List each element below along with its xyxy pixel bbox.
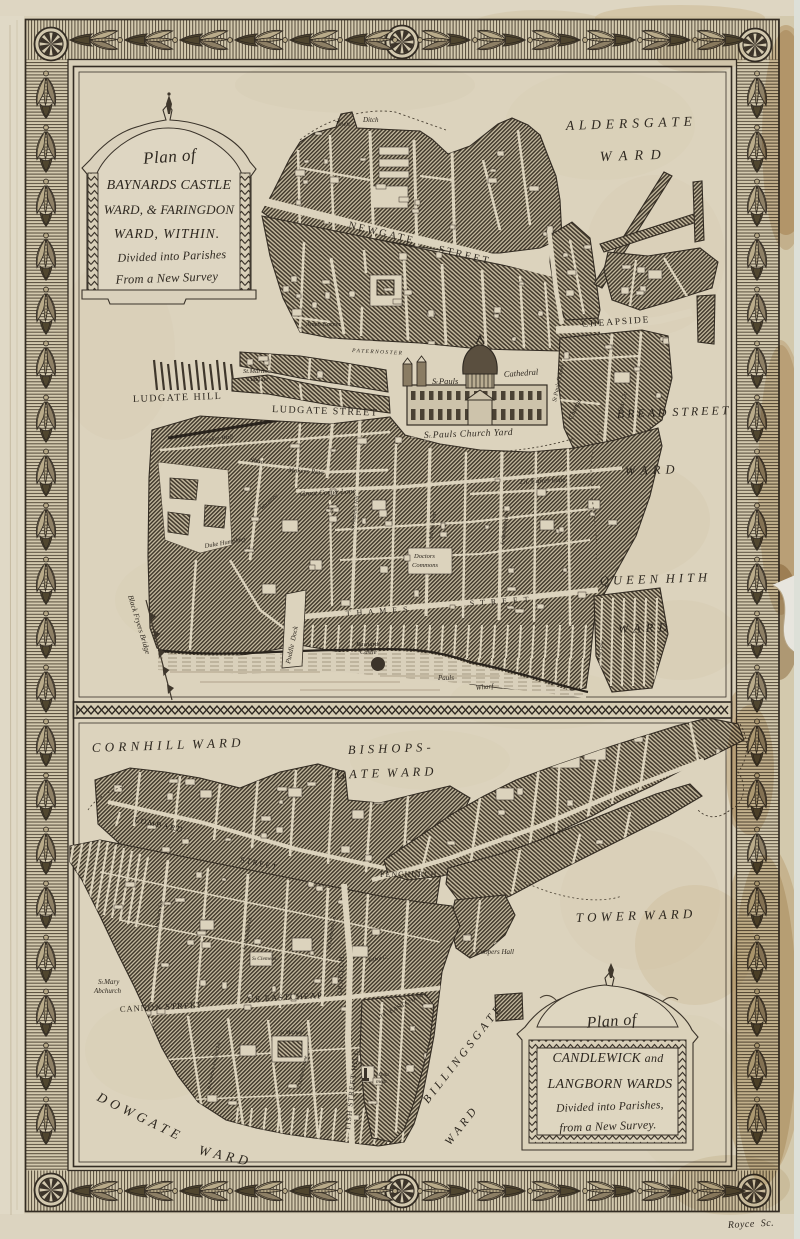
svg-text:Pauls: Pauls [437,674,454,682]
svg-text:St Clemens: St Clemens [252,956,276,962]
svg-text:Castle: Castle [360,649,377,656]
svg-text:W A R D: W A R D [625,462,676,478]
svg-text:Ditch: Ditch [362,116,379,124]
svg-text:St.Pauls: St.Pauls [432,376,459,386]
svg-text:Abchurch: Abchurch [93,987,121,995]
svg-text:Baynards: Baynards [356,641,381,648]
svg-text:Town: Town [335,120,350,128]
svg-text:Amen Corner: Amen Corner [305,321,342,328]
svg-text:LANGBORN WARDS: LANGBORN WARDS [547,1077,673,1092]
svg-text:Ludgate: Ludgate [246,376,268,383]
svg-text:W A R D: W A R D [600,148,663,165]
svg-text:St.Mary: St.Mary [98,978,120,986]
svg-text:Doctors: Doctors [413,553,435,560]
svg-text:B I S H O P S -: B I S H O P S - [348,740,432,757]
svg-text:Monu: Monu [375,1072,389,1078]
svg-text:FENCHURCH: FENCHURCH [380,870,437,879]
svg-text:Commons: Commons [412,562,438,569]
svg-text:St Michael: St Michael [280,1030,304,1036]
svg-text:BAYNARDS CASTLE: BAYNARDS CASTLE [107,178,232,193]
svg-text:Plan of: Plan of [141,145,198,168]
svg-text:WARD, & FARINGDON: WARD, & FARINGDON [104,202,236,217]
svg-text:ment: ment [376,1079,387,1085]
svg-text:WARD, WITHIN.: WARD, WITHIN. [114,226,220,241]
svg-text:W A R D: W A R D [618,620,669,636]
svg-text:Coopers Hall: Coopers Hall [476,948,514,956]
svg-text:CANDLEWICK and: CANDLEWICK and [552,1050,664,1065]
svg-text:St.Martins: St.Martins [243,368,271,375]
